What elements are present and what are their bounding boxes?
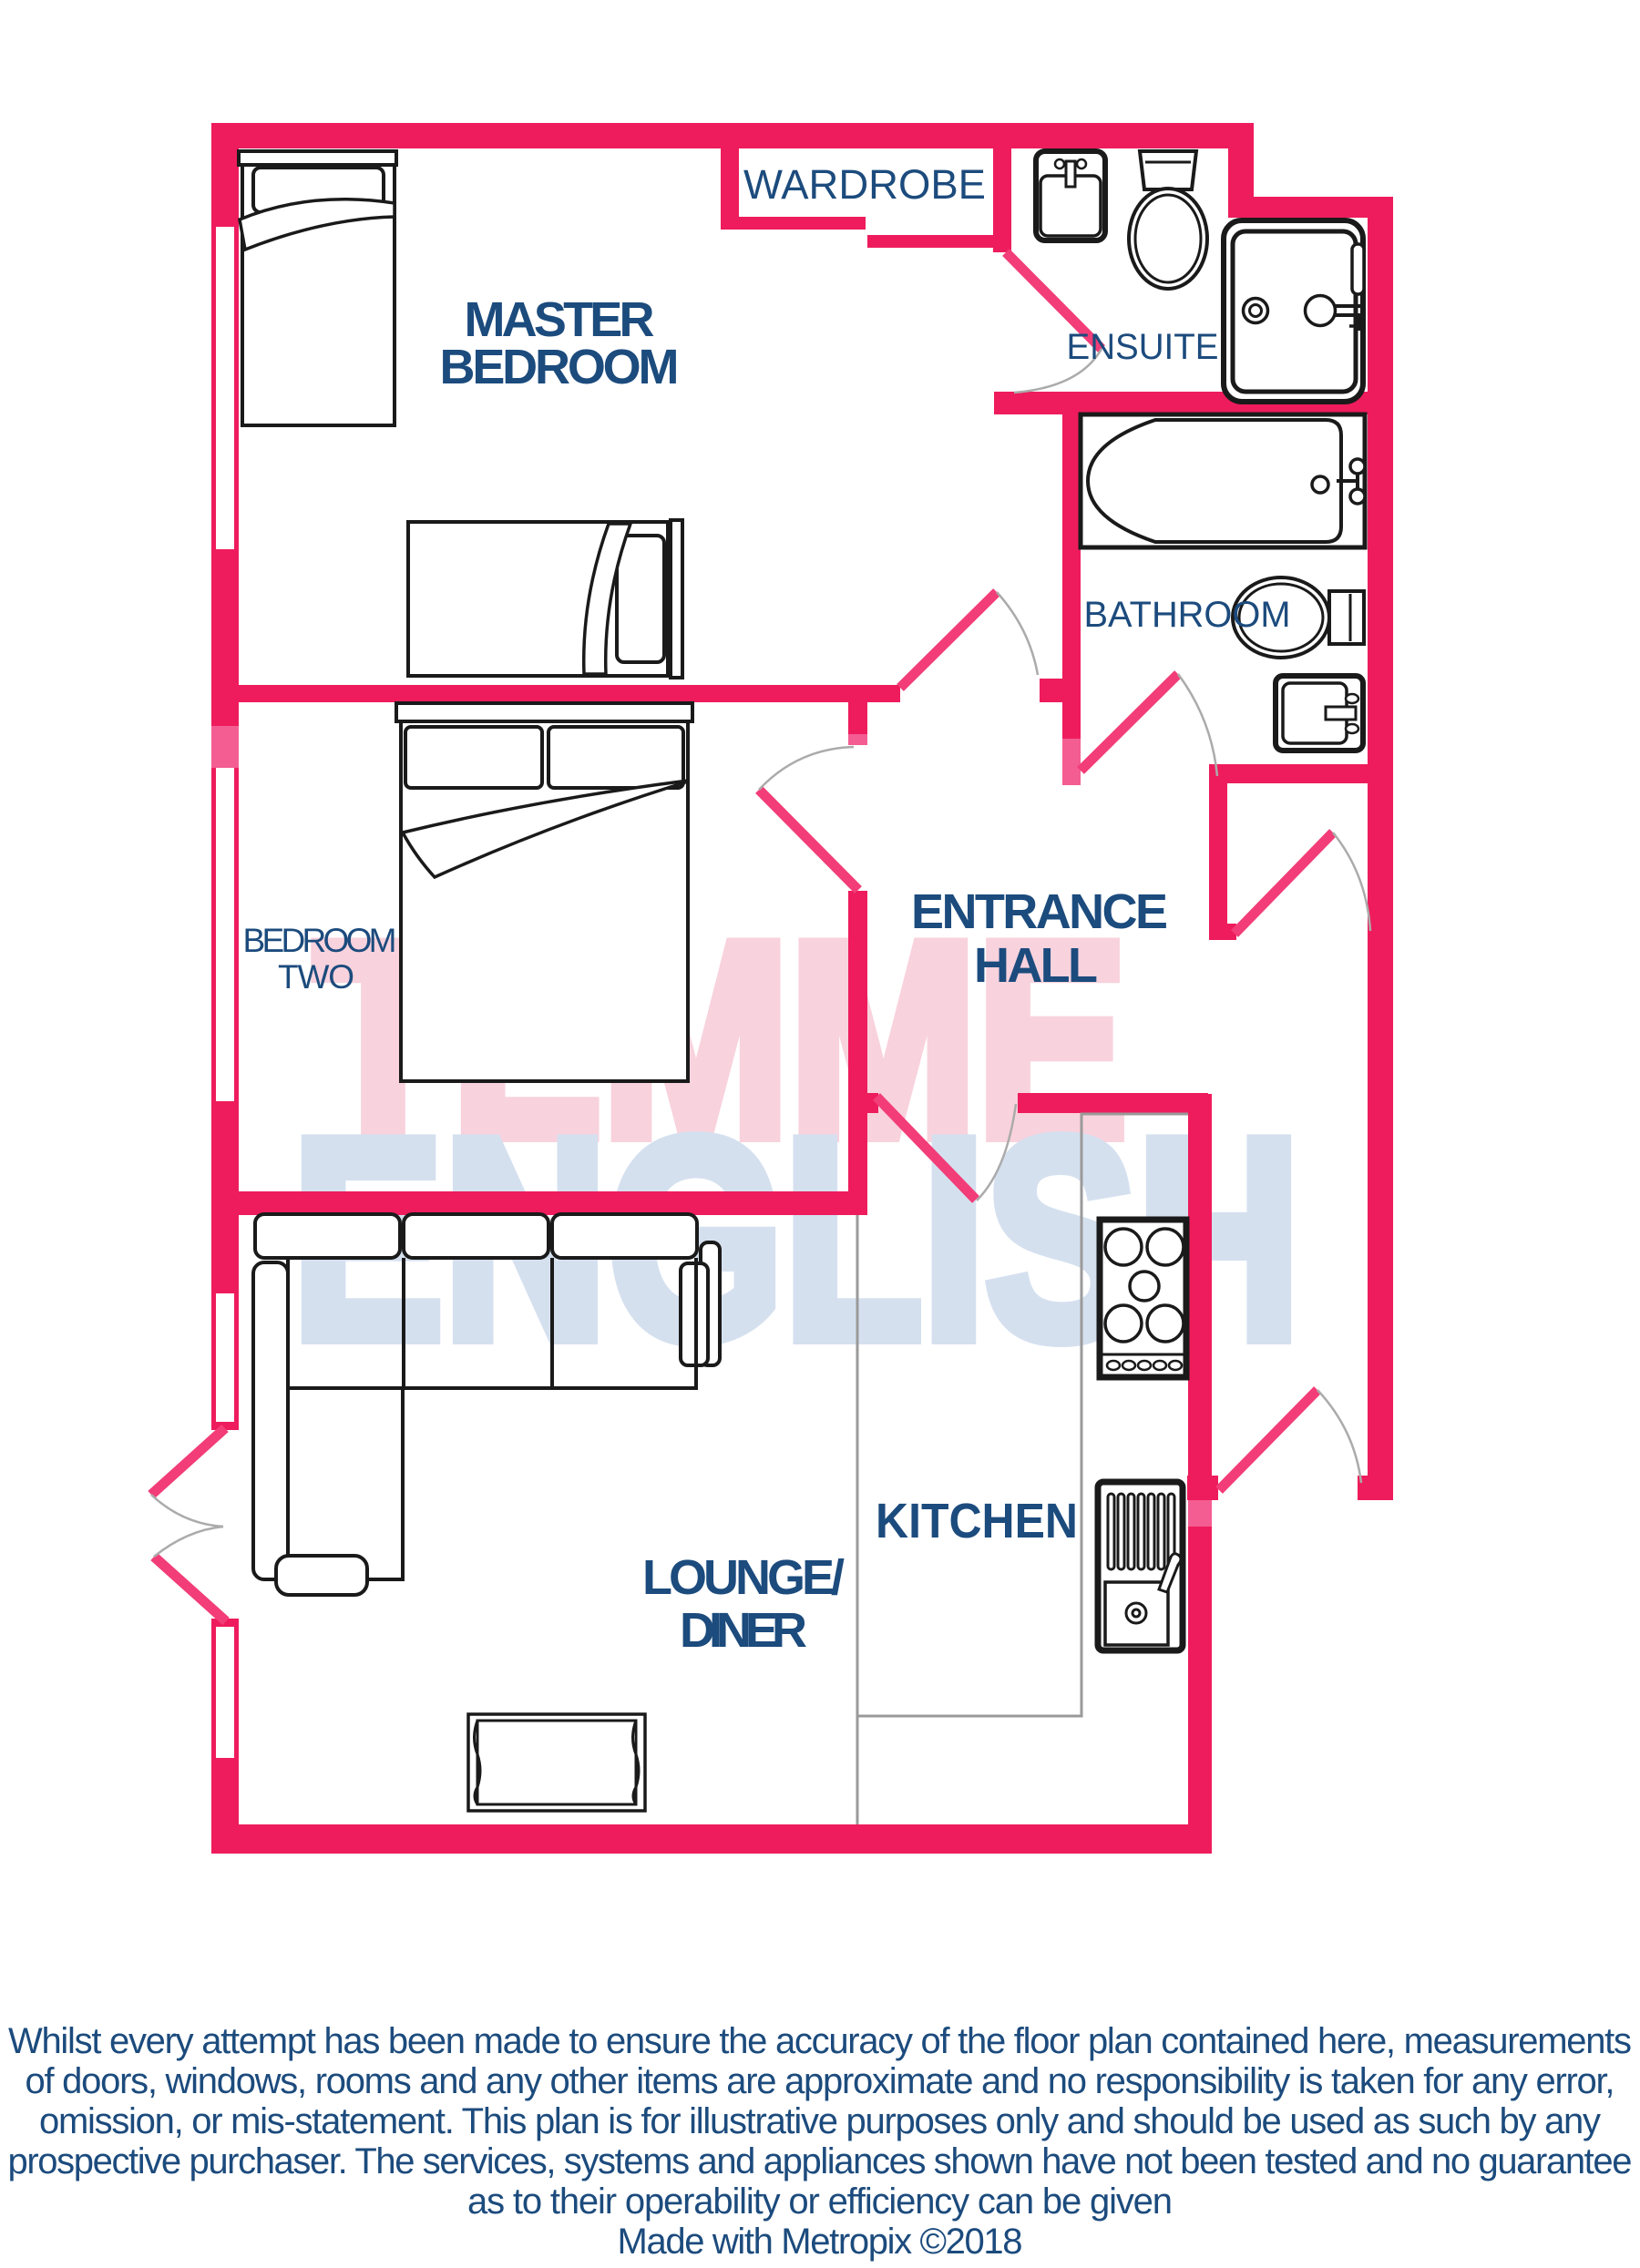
svg-text:DINER: DINER (680, 1603, 807, 1658)
svg-text:prospective purchaser. The ser: prospective purchaser. The services, sys… (8, 2141, 1633, 2181)
svg-text:TWO: TWO (278, 958, 354, 996)
svg-text:BEDROOM: BEDROOM (440, 340, 680, 394)
svg-text:LOUNGE/: LOUNGE/ (642, 1550, 845, 1605)
svg-text:Made with Metropix ©2018: Made with Metropix ©2018 (618, 2222, 1023, 2262)
svg-text:ENTRANCE: ENTRANCE (911, 884, 1168, 939)
svg-text:KITCHEN: KITCHEN (876, 1494, 1078, 1548)
svg-text:BEDROOM: BEDROOM (243, 922, 397, 959)
svg-text:BATHROOM: BATHROOM (1084, 595, 1291, 635)
svg-text:WARDROBE: WARDROBE (743, 161, 986, 208)
svg-text:of doors, windows, rooms and a: of doors, windows, rooms and any other i… (26, 2061, 1615, 2101)
svg-text:MASTER: MASTER (465, 292, 655, 347)
svg-text:omission, or mis-statement. Th: omission, or mis-statement. This plan is… (39, 2101, 1601, 2141)
svg-text:as to their operability or eff: as to their operability or efficiency ca… (467, 2181, 1173, 2222)
svg-text:HALL: HALL (974, 938, 1098, 993)
svg-text:Whilst every attempt has been: Whilst every attempt has been made to en… (8, 2021, 1632, 2061)
svg-text:ENSUITE: ENSUITE (1067, 327, 1219, 367)
